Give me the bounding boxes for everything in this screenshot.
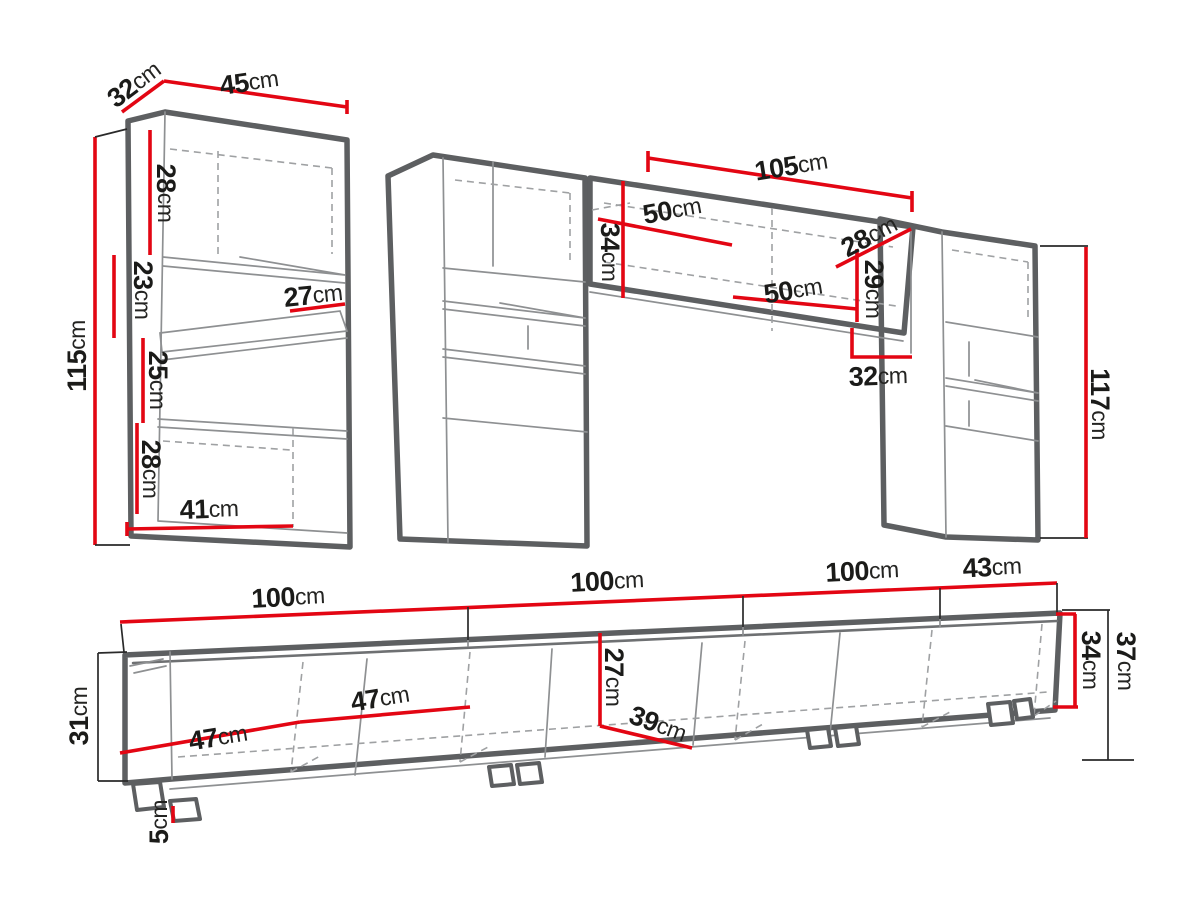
dim-label-stand-height-right: 37cm [1111, 632, 1141, 691]
right-cabinet-shelves [946, 378, 1038, 401]
dim-label-stand-seg4: 43cm [962, 550, 1022, 583]
dim-label-stand-seg2: 100cm [570, 564, 645, 598]
left-cabinet-divider [158, 419, 347, 439]
dim-ticks-right-height [1040, 246, 1088, 538]
tv-stand-foot [489, 765, 514, 786]
wall-shelf: 105cm 50cm 34cm 28cm 29cm 50cm 32cm [590, 145, 913, 392]
dim-label-shelf-height: 34cm [595, 223, 625, 282]
left-cabinet-shelf-top [163, 257, 345, 283]
tv-stand-foot [1014, 699, 1033, 719]
dim-label-section-lower-mid: 25cm [143, 351, 173, 410]
dim-label-stand-door-left: 47cm [187, 718, 250, 757]
dim-label-right-height: 117cm [1085, 368, 1115, 440]
dim-label-shelf-depth: 27cm [282, 277, 344, 313]
middle-cabinet-outline [388, 155, 587, 546]
dim-label-shelf-right-inner-h: 29cm [859, 260, 889, 319]
tv-stand-foot [517, 763, 542, 784]
dim-label-section-upper-mid: 23cm [128, 261, 158, 320]
dim-label-stand-inner-right: 34cm [1076, 631, 1106, 690]
dim-label-stand-seg1: 100cm [251, 580, 326, 614]
tv-stand-foot [835, 726, 859, 746]
left-cabinet-hidden-lines [163, 149, 332, 527]
dim-label-section-bottom: 28cm [136, 440, 166, 499]
tv-stand-outline [125, 613, 1060, 783]
dim-label-shelf-left-inner: 50cm [640, 190, 703, 230]
middle-cabinet-front-edges [443, 158, 587, 542]
dim-label-stand-inner-height: 27cm [599, 648, 629, 707]
dim-label-section-top: 28cm [151, 164, 181, 223]
diagram-canvas: 32cm 45cm 115cm 28cm 23cm 25cm 28cm 27cm… [0, 0, 1200, 900]
left-cabinet-shelf-mid [160, 311, 347, 360]
tv-stand-foot [807, 728, 831, 748]
dim-label-bottom-width: 41cm [179, 493, 239, 525]
middle-cabinet [388, 155, 587, 546]
dim-label-stand-foot: 5cm [144, 800, 174, 844]
right-cabinet-hidden-lines [952, 250, 1028, 318]
dim-label-stand-height-left: 31cm [64, 687, 94, 746]
right-cabinet: 117cm [880, 219, 1115, 540]
left-cabinet: 32cm 45cm 115cm 28cm 23cm 25cm 28cm 27cm… [62, 54, 350, 547]
furniture-dimension-diagram: 32cm 45cm 115cm 28cm 23cm 25cm 28cm 27cm… [0, 0, 1200, 900]
dim-label-stand-seg3: 100cm [825, 554, 900, 588]
dim-label-shelf-end-width: 32cm [848, 360, 908, 392]
dim-label-shelf-width: 105cm [752, 145, 829, 186]
tv-stand-top-front-edge [133, 621, 1057, 663]
middle-cabinet-shelves [443, 301, 585, 374]
tv-stand-foot [988, 702, 1013, 725]
dim-label-left-height: 115cm [62, 320, 92, 392]
middle-cabinet-hidden-lines [455, 180, 570, 260]
wall-shelf-hidden-lines [592, 203, 896, 331]
tv-stand: 100cm 100cm 100cm 43cm 31cm 47cm 47cm 27… [64, 550, 1141, 844]
